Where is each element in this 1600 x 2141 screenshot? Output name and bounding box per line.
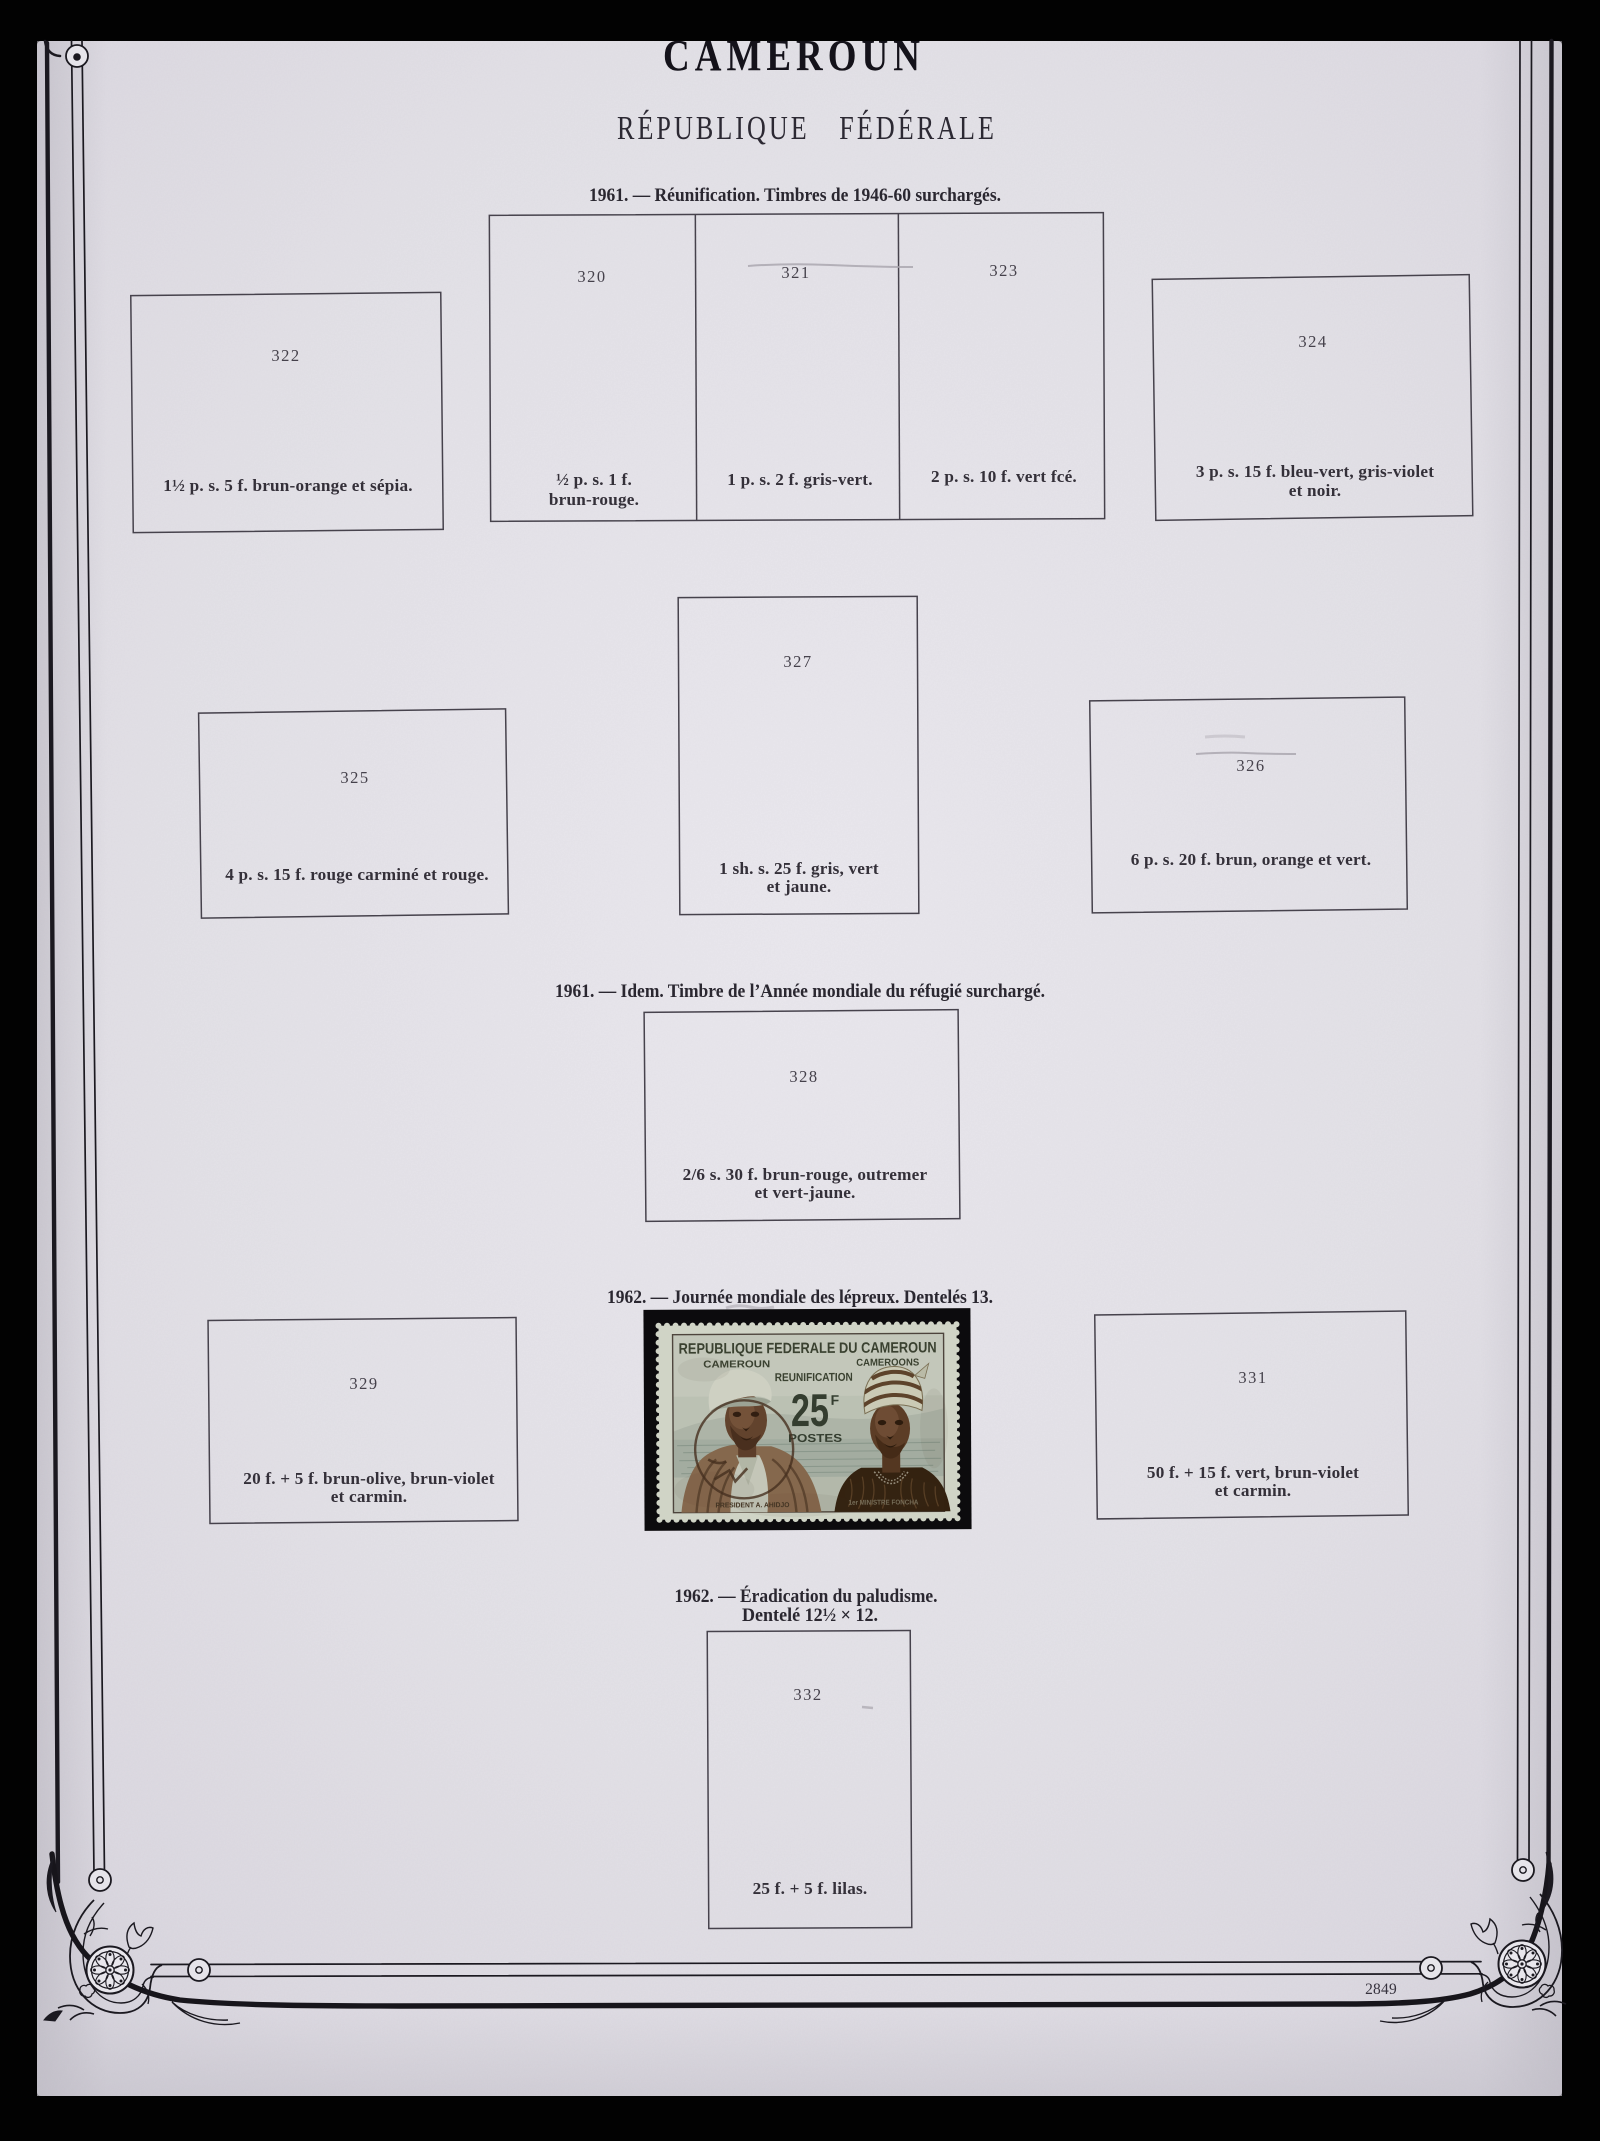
svg-text:Dentelé 12½ × 12.: Dentelé 12½ × 12. [742,1605,878,1626]
svg-text:25 f. + 5 f. lilas.: 25 f. + 5 f. lilas. [753,1879,868,1898]
svg-text:1½ p. s. 5 f. brun-orange et s: 1½ p. s. 5 f. brun-orange et sépia. [163,476,413,495]
svg-text:332: 332 [793,1685,822,1704]
svg-text:321: 321 [781,263,810,282]
svg-text:1961. — Idem. Timbre de l’Anné: 1961. — Idem. Timbre de l’Année mondiale… [555,981,1045,1002]
svg-text:2849: 2849 [1365,1981,1397,1998]
svg-text:320: 320 [577,267,606,286]
svg-text:20 f. + 5 f. brun-olive, brun-: 20 f. + 5 f. brun-olive, brun-violet [243,1469,494,1488]
svg-text:323: 323 [989,261,1018,280]
svg-text:2 p. s. 10 f. vert fcé.: 2 p. s. 10 f. vert fcé. [931,467,1077,486]
svg-text:331: 331 [1238,1368,1267,1387]
svg-text:322: 322 [271,346,300,365]
svg-text:328: 328 [789,1067,818,1086]
svg-text:6 p. s. 20 f. brun, orange et: 6 p. s. 20 f. brun, orange et vert. [1131,850,1371,869]
svg-text:325: 325 [340,768,369,787]
svg-text:et jaune.: et jaune. [767,877,832,896]
svg-text:CAMEROUN: CAMEROUN [663,31,925,80]
svg-text:1 p. s. 2 f. gris-vert.: 1 p. s. 2 f. gris-vert. [727,470,872,489]
svg-text:4 p. s. 15 f. rouge carminé et: 4 p. s. 15 f. rouge carminé et rouge. [225,865,489,884]
svg-text:1961. — Réunification. Timbres: 1961. — Réunification. Timbres de 1946-6… [589,185,1001,206]
svg-text:brun-rouge.: brun-rouge. [549,490,639,509]
svg-text:329: 329 [349,1374,378,1393]
svg-text:RÉPUBLIQUE FÉDÉRALE: RÉPUBLIQUE FÉDÉRALE [617,110,997,147]
svg-text:et carmin.: et carmin. [331,1487,407,1506]
svg-text:1 sh. s. 25 f. gris, vert: 1 sh. s. 25 f. gris, vert [719,859,879,878]
svg-text:½ p. s. 1 f.: ½ p. s. 1 f. [556,470,632,489]
svg-text:et noir.: et noir. [1289,481,1342,500]
svg-text:3 p. s. 15 f. bleu-vert, gris-: 3 p. s. 15 f. bleu-vert, gris-violet [1196,462,1434,481]
svg-text:327: 327 [783,652,812,671]
svg-text:et carmin.: et carmin. [1215,1481,1291,1500]
svg-text:324: 324 [1298,332,1327,351]
svg-text:1962. — Éradication du paludis: 1962. — Éradication du paludisme. [675,1585,938,1607]
svg-text:2/6 s. 30 f. brun-rouge, outre: 2/6 s. 30 f. brun-rouge, outremer [683,1165,928,1184]
svg-text:50 f. + 15 f. vert, brun-viole: 50 f. + 15 f. vert, brun-violet [1147,1463,1359,1482]
svg-text:326: 326 [1236,756,1265,775]
svg-text:1962. — Journée mondiale des l: 1962. — Journée mondiale des lépreux. De… [607,1287,993,1308]
svg-text:et vert-jaune.: et vert-jaune. [754,1183,855,1202]
